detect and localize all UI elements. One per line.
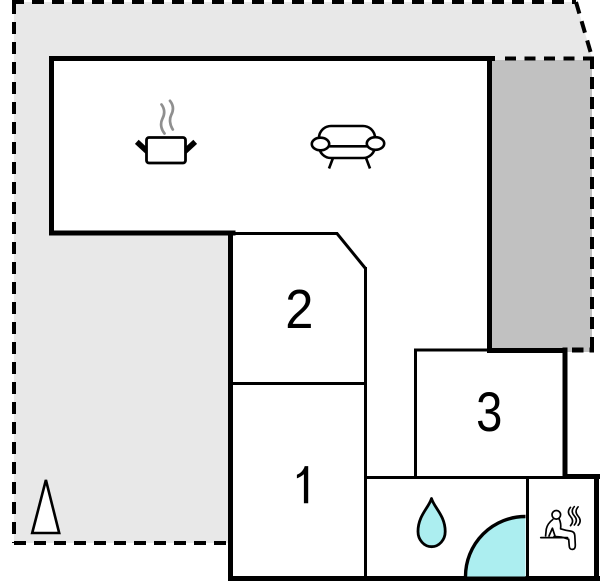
svg-text:2: 2 <box>285 279 313 340</box>
svg-text:3: 3 <box>476 380 502 442</box>
